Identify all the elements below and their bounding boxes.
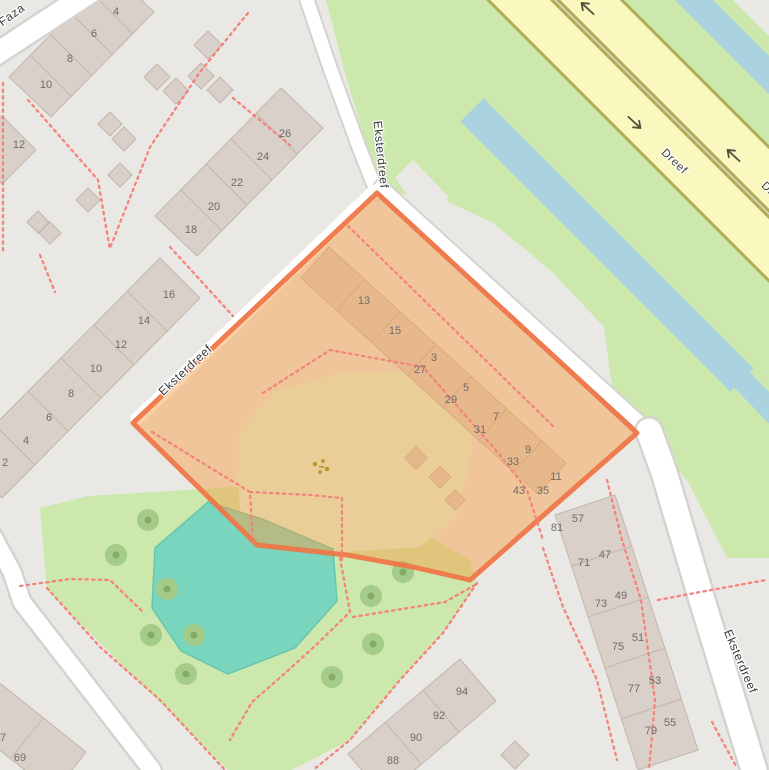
building [194,31,222,59]
house-number: 77 [628,683,640,695]
house-number: 22 [231,177,243,189]
building [163,78,189,104]
house-number: 15 [389,325,401,337]
tree-icon-center [148,632,155,639]
house-number: 4 [113,6,119,18]
house-number: 5 [463,382,469,394]
house-number: 94 [456,686,468,698]
building [76,188,100,212]
house-number: 2 [2,457,8,469]
house-number: 26 [279,128,291,140]
house-number: 67 [0,732,6,744]
tree-icon-center [183,671,190,678]
tree-icon-center [368,593,375,600]
tree-icon-center [329,674,336,681]
house-number: 29 [445,394,457,406]
tree-icon-center [145,517,152,524]
tree-icon-center [400,569,407,576]
house-number: 47 [599,549,611,561]
house-number: 3 [431,352,437,364]
house-number: 7 [493,411,499,423]
building [144,64,170,90]
house-number: 51 [632,632,644,644]
house-number: 24 [257,151,269,163]
building [207,77,233,103]
house-number: 75 [612,641,624,653]
house-number: 55 [664,717,676,729]
house-number: 90 [410,732,422,744]
house-number: 71 [578,557,590,569]
house-number: 49 [615,590,627,602]
house-number: 13 [358,295,370,307]
house-number: 33 [507,456,519,468]
tree-icon-center [164,586,171,593]
house-number: 9 [525,444,531,456]
house-number: 16 [163,289,175,301]
map-canvas[interactable]: 4681012262422201816141210864213153275297… [0,0,769,770]
house-number: 10 [40,79,52,91]
house-number: 12 [13,139,25,151]
house-number: 6 [91,28,97,40]
building [108,163,132,187]
house-number: 53 [649,675,661,687]
map-svg: 4681012262422201816141210864213153275297… [0,0,769,770]
tree-icon-center [113,552,120,559]
house-number: 10 [90,363,102,375]
house-number: 27 [414,364,426,376]
house-number: 57 [572,513,584,525]
house-number: 4 [23,435,29,447]
house-number: 92 [433,710,445,722]
house-number: 35 [537,485,549,497]
house-number: 73 [595,598,607,610]
house-number: 8 [67,53,73,65]
tree-icon-center [191,632,198,639]
house-number: 6 [46,412,52,424]
house-number: 8 [68,388,74,400]
building-row [155,88,323,256]
house-number: 20 [208,201,220,213]
house-number: 18 [185,224,197,236]
building [501,741,529,769]
house-number: 81 [551,522,563,534]
house-number: 69 [14,752,26,764]
house-number: 12 [115,339,127,351]
tree-icon-center [370,641,377,648]
house-number: 43 [513,485,525,497]
house-number: 31 [474,424,486,436]
house-number: 14 [138,315,150,327]
house-number: 88 [387,755,399,767]
house-number: 11 [550,471,561,483]
house-number: 79 [645,725,657,737]
